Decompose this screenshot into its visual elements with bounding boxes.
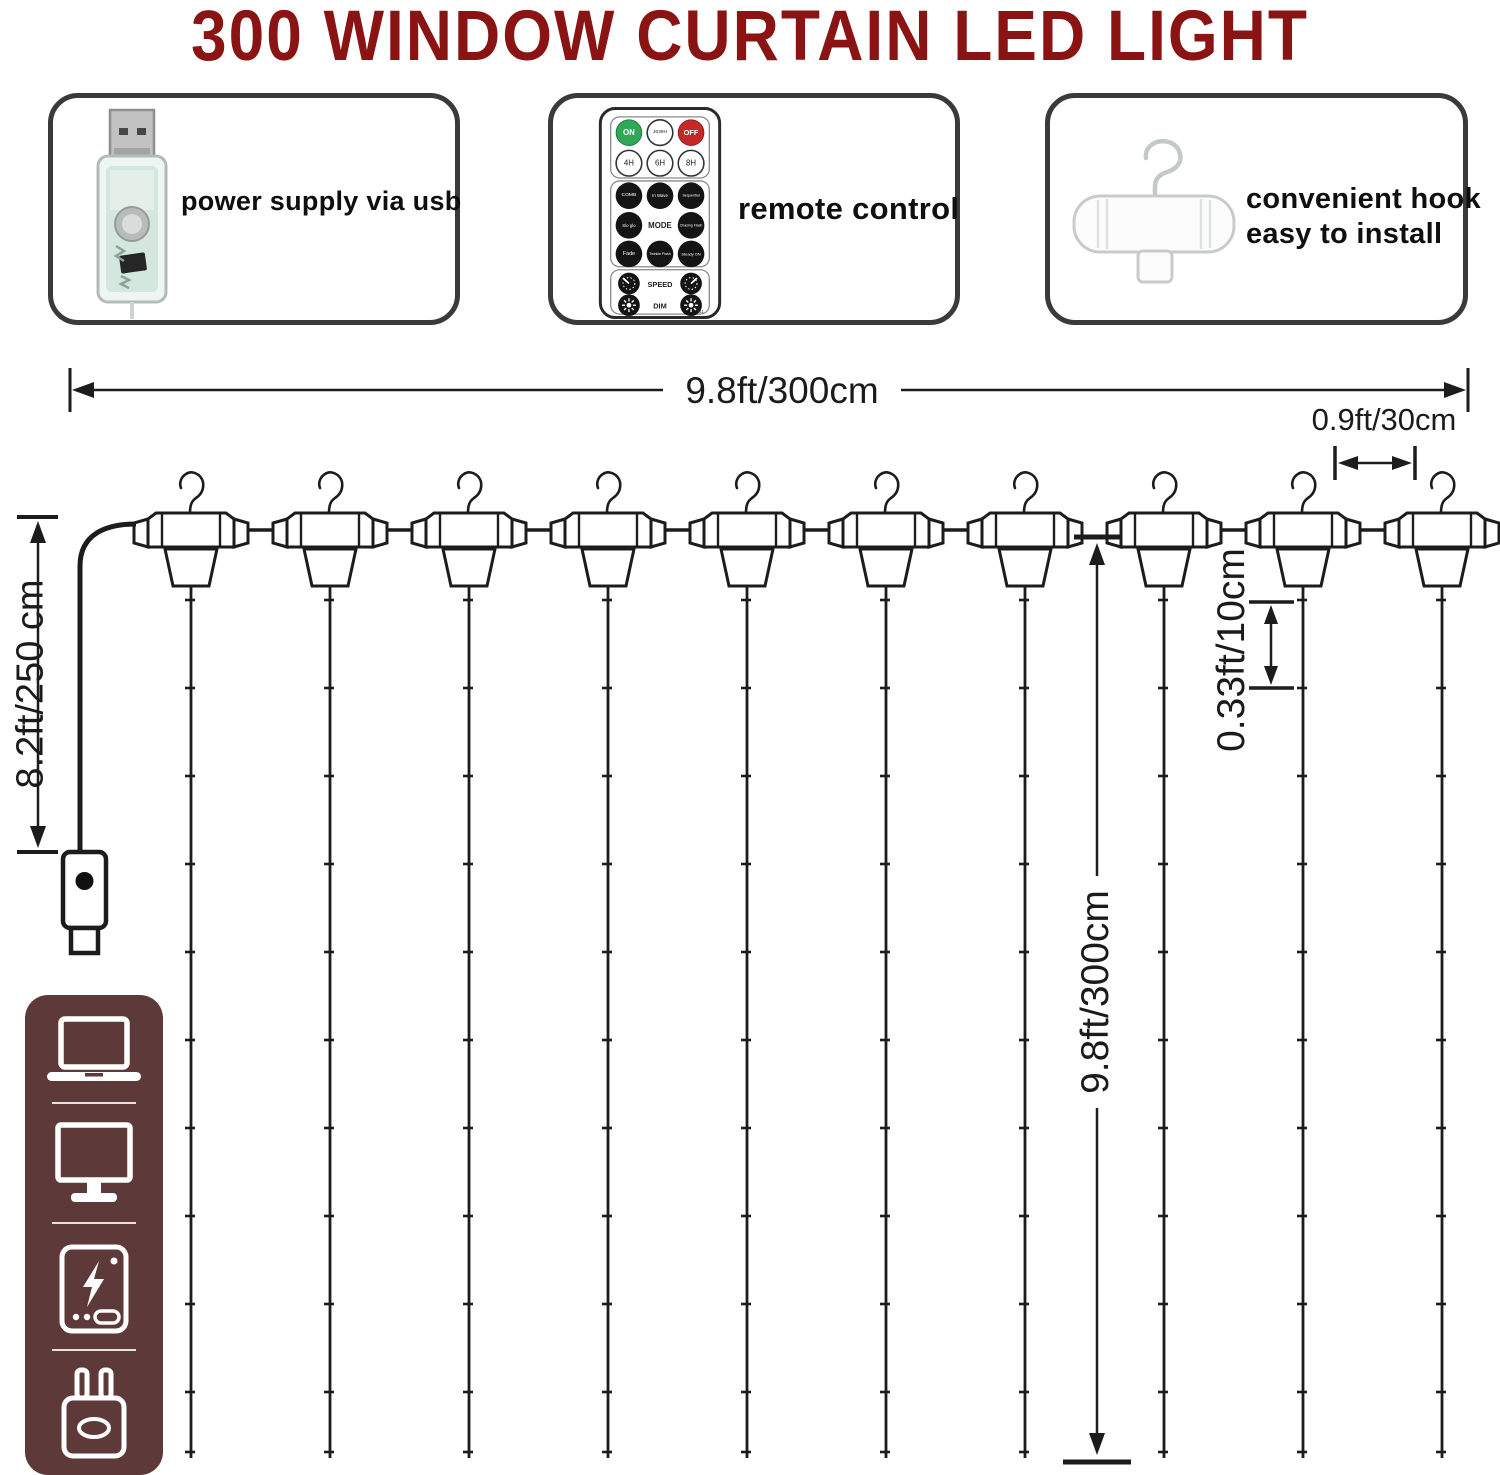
feature-box-remote: ON J639H OFF 4H 6H 8H COMB In Wave Seque… — [548, 93, 960, 325]
remote-dim-label: DIM — [653, 302, 667, 311]
svg-text:Twinkle Flash: Twinkle Flash — [649, 252, 671, 256]
feature-label-usb-power: power supply via usb — [181, 184, 462, 219]
hook-curl — [1014, 472, 1037, 513]
svg-text:J639H: J639H — [653, 129, 668, 135]
hook-curl — [1292, 472, 1315, 513]
hook-left-cap — [1385, 519, 1399, 547]
hook-left-cap — [412, 519, 426, 547]
product-infographic-page: { "title": "300 WINDOW CURTAIN LED LIGHT… — [0, 0, 1500, 1475]
svg-text:6H: 6H — [655, 159, 665, 168]
hook-left-cap — [829, 519, 843, 547]
svg-text:COMB: COMB — [622, 192, 637, 198]
hook-drop-base — [999, 549, 1051, 586]
label-curtain-width: 9.8ft/300cm — [679, 370, 884, 412]
hook-right-cap — [651, 519, 665, 547]
svg-text:OFF: OFF — [684, 128, 699, 137]
remote-speed-label: SPEED — [647, 280, 673, 289]
hook-drop-base — [443, 549, 495, 586]
svg-text:Steady ON: Steady ON — [681, 251, 700, 256]
svg-text:In Wave: In Wave — [652, 193, 668, 198]
dimension-led-spacing — [1249, 602, 1294, 688]
feature-label-remote: remote control — [738, 191, 959, 226]
hook-left-cap — [134, 519, 148, 547]
hook-drop-base — [1138, 549, 1190, 586]
svg-text:Slo glo: Slo glo — [622, 223, 636, 228]
hook-curl — [180, 472, 203, 513]
hook-drop-base — [721, 549, 773, 586]
remote-mode-label: MODE — [648, 221, 672, 230]
hook-right-cap — [1346, 519, 1360, 547]
hook-left-cap — [551, 519, 565, 547]
hook-right-cap — [929, 519, 943, 547]
hook-curl — [597, 472, 620, 513]
sidebar — [25, 995, 163, 1475]
svg-text:Sequential: Sequential — [682, 194, 699, 198]
usb-connector-illustration — [63, 852, 106, 953]
hook-left-cap — [273, 519, 287, 547]
svg-text:Fade: Fade — [623, 251, 635, 257]
hook-right-cap — [373, 519, 387, 547]
svg-text:ON: ON — [623, 128, 635, 137]
svg-text:Chasing Flash: Chasing Flash — [680, 223, 703, 227]
hook-drop-base — [304, 549, 356, 586]
label-string-spacing: 0.9ft/30cm — [1306, 402, 1463, 438]
label-led-spacing: 0.33ft/10cm — [1210, 542, 1254, 758]
usb-plug-photo — [91, 108, 173, 320]
hooks-and-strings-layer — [134, 472, 1499, 1458]
hook-right-cap — [1485, 519, 1499, 547]
hook-drop-base — [165, 549, 217, 586]
hook-left-cap — [1107, 519, 1121, 547]
hanging-hook-photo — [1064, 134, 1246, 306]
hook-drop-base — [860, 549, 912, 586]
page-title: 300 WINDOW CURTAIN LED LIGHT — [0, 0, 1500, 77]
remote-footnote: 111 — [697, 309, 704, 314]
power-cord — [80, 524, 136, 852]
feature-box-usb-power: power supply via usb — [48, 93, 460, 325]
curtain-light-diagram — [0, 340, 1500, 1475]
hook-curl — [458, 472, 481, 513]
svg-text:4H: 4H — [624, 159, 634, 168]
hook-left-cap — [690, 519, 704, 547]
hook-drop-base — [1277, 549, 1329, 586]
hook-right-cap — [234, 519, 248, 547]
hook-left-cap — [968, 519, 982, 547]
hook-right-cap — [790, 519, 804, 547]
hook-drop-base — [582, 549, 634, 586]
hook-right-cap — [512, 519, 526, 547]
feature-label-hook: convenient hook easy to install — [1246, 182, 1481, 252]
hook-right-cap — [1068, 519, 1082, 547]
hook-drop-base — [1416, 549, 1468, 586]
svg-text:8H: 8H — [686, 159, 696, 168]
remote-control-photo: ON J639H OFF 4H 6H 8H COMB In Wave Seque… — [597, 106, 723, 320]
hook-curl — [1153, 472, 1176, 513]
hook-curl — [875, 472, 898, 513]
label-curtain-drop: 9.8ft/300cm — [1074, 884, 1118, 1100]
remote-dim-down-button — [618, 294, 640, 316]
hook-curl — [1431, 472, 1454, 513]
hook-curl — [736, 472, 759, 513]
dimension-string-spacing — [1335, 446, 1415, 480]
hook-curl — [319, 472, 342, 513]
feature-box-hook: convenient hook easy to install — [1045, 93, 1468, 325]
label-cord-length: 8.2ft/250 cm — [10, 573, 53, 794]
